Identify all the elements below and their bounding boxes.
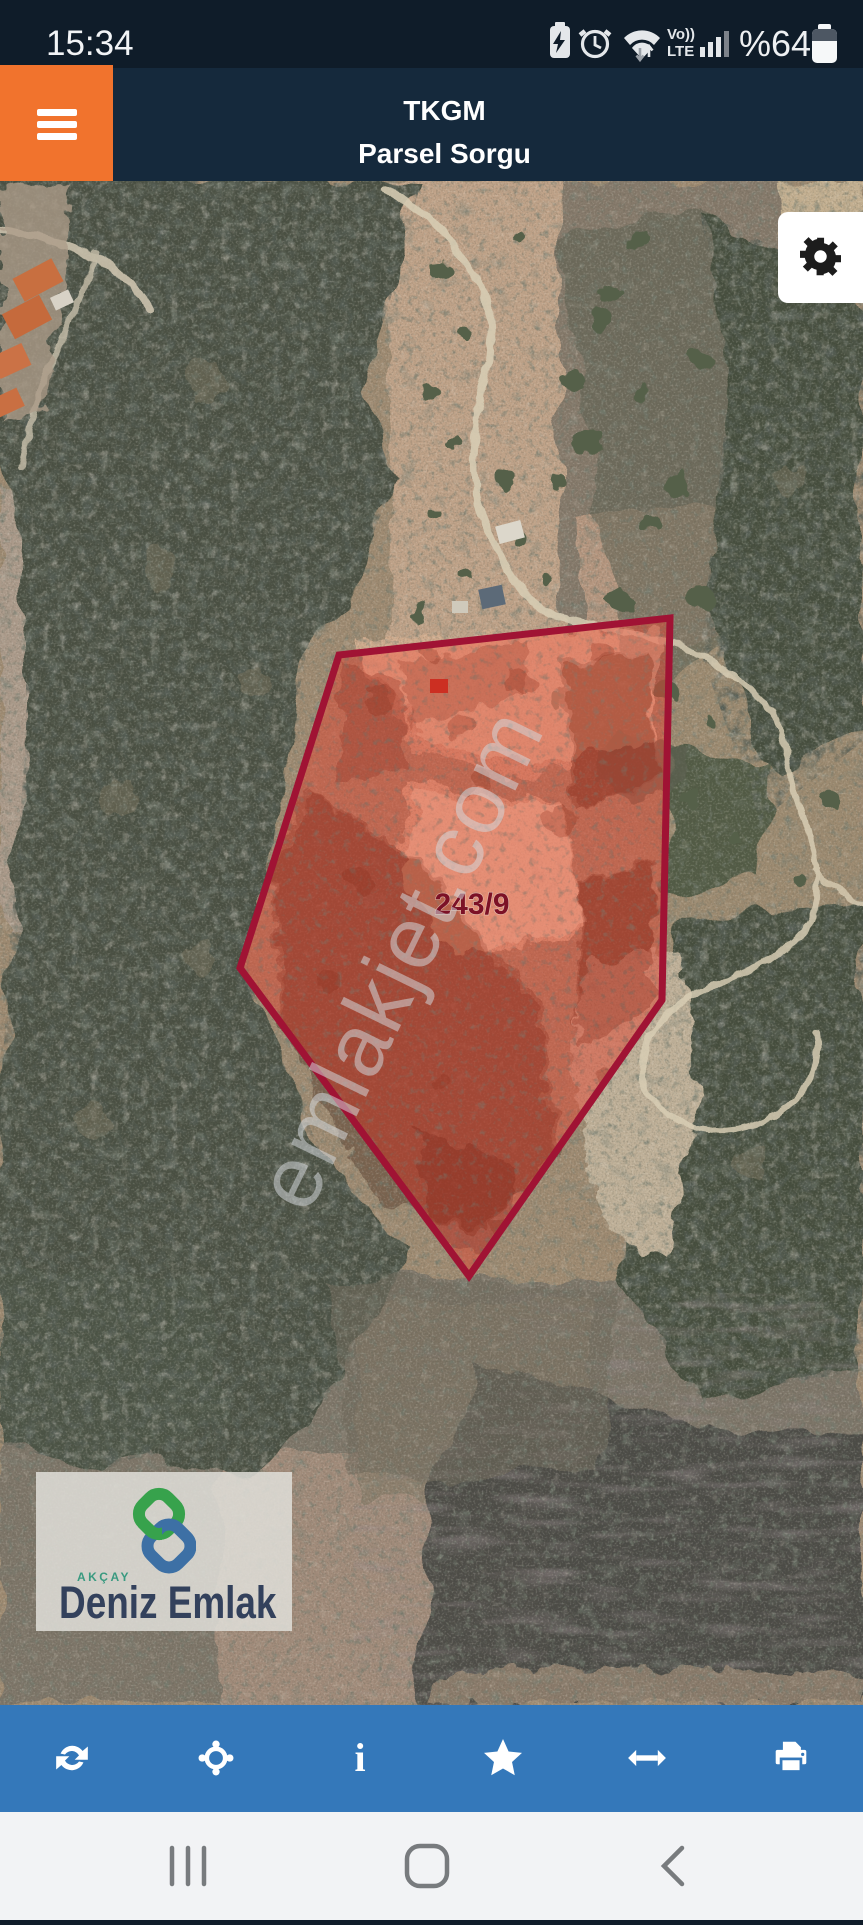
svg-text:%64: %64 <box>739 23 811 64</box>
svg-text:i: i <box>354 1735 365 1780</box>
svg-text:Vo)): Vo)) <box>667 26 695 43</box>
svg-text:LTE: LTE <box>667 43 694 60</box>
